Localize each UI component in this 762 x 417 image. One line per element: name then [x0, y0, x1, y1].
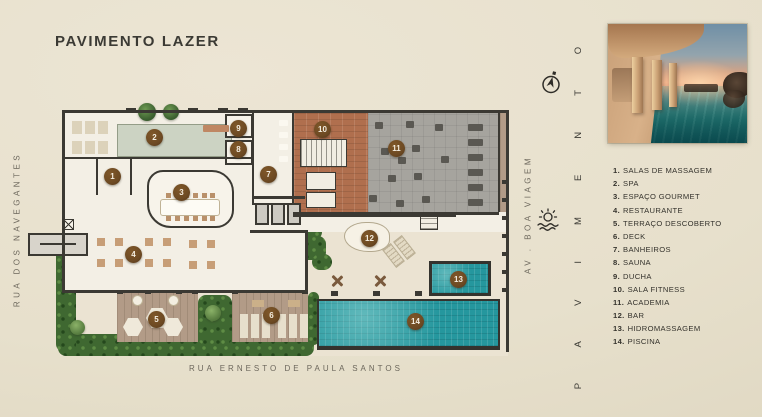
wall-wing-right [305, 230, 308, 292]
wall [253, 196, 305, 199]
wall-right [506, 110, 509, 352]
pool-post [331, 291, 338, 296]
wall-left [62, 110, 65, 292]
deck-lounger [252, 300, 264, 307]
plan-marker-4: 4 [125, 246, 142, 263]
plan-marker-13: 13 [450, 271, 467, 288]
plan-marker-11: 11 [388, 140, 405, 157]
gourmet-counter [160, 199, 220, 216]
terrace-table [132, 295, 143, 306]
fitness-room [306, 172, 336, 190]
plan-marker-14: 14 [407, 313, 424, 330]
wall-top [62, 110, 509, 113]
floor-plan: 1 2 3 4 5 6 7 8 9 10 11 12 13 14 [0, 0, 762, 417]
utility-box [63, 219, 74, 230]
plan-marker-7: 7 [260, 166, 277, 183]
wall-room-divider [96, 159, 98, 195]
balcony-ticks [502, 180, 509, 184]
plan-marker-9: 9 [230, 120, 247, 137]
palm-tree [70, 320, 85, 335]
plan-marker-5: 5 [148, 311, 165, 328]
elevator [255, 203, 269, 225]
page: PAVIMENTO LAZER RUA DOS NAVEGANTES AV . … [0, 0, 762, 417]
plan-marker-1: 1 [104, 168, 121, 185]
wall-room-divider [130, 159, 132, 195]
wall-corridor [62, 157, 252, 159]
plan-marker-3: 3 [173, 184, 190, 201]
wall [250, 230, 307, 233]
parasol [373, 274, 387, 288]
deck-lounger [288, 300, 300, 307]
pool-post [373, 291, 380, 296]
hedge-bar-curve [312, 254, 332, 270]
terrace-steps [420, 216, 438, 230]
spa-loungers [72, 121, 82, 134]
plan-marker-8: 8 [230, 141, 247, 158]
gym-equipment-row [468, 124, 483, 131]
wall [292, 112, 294, 205]
plan-marker-12: 12 [361, 230, 378, 247]
gourmet-chairs [166, 193, 171, 198]
fitness-room [306, 192, 336, 208]
wall [252, 112, 254, 205]
stairs [300, 139, 347, 167]
pool-post [415, 291, 422, 296]
plan-marker-2: 2 [146, 129, 163, 146]
terrace-table [168, 295, 179, 306]
wall-gym-bottom [368, 212, 499, 215]
restaurant-tables [97, 238, 105, 246]
bathroom-fixtures [279, 120, 288, 126]
deck-loungers [240, 314, 248, 338]
entry-handrail [40, 243, 76, 245]
plan-marker-10: 10 [314, 121, 331, 138]
plan-marker-6: 6 [263, 307, 280, 324]
parasol [330, 274, 344, 288]
spa-bench [203, 125, 229, 132]
elevator [271, 203, 285, 225]
palm-tree [205, 305, 221, 321]
wall-wing-bottom [62, 290, 307, 293]
